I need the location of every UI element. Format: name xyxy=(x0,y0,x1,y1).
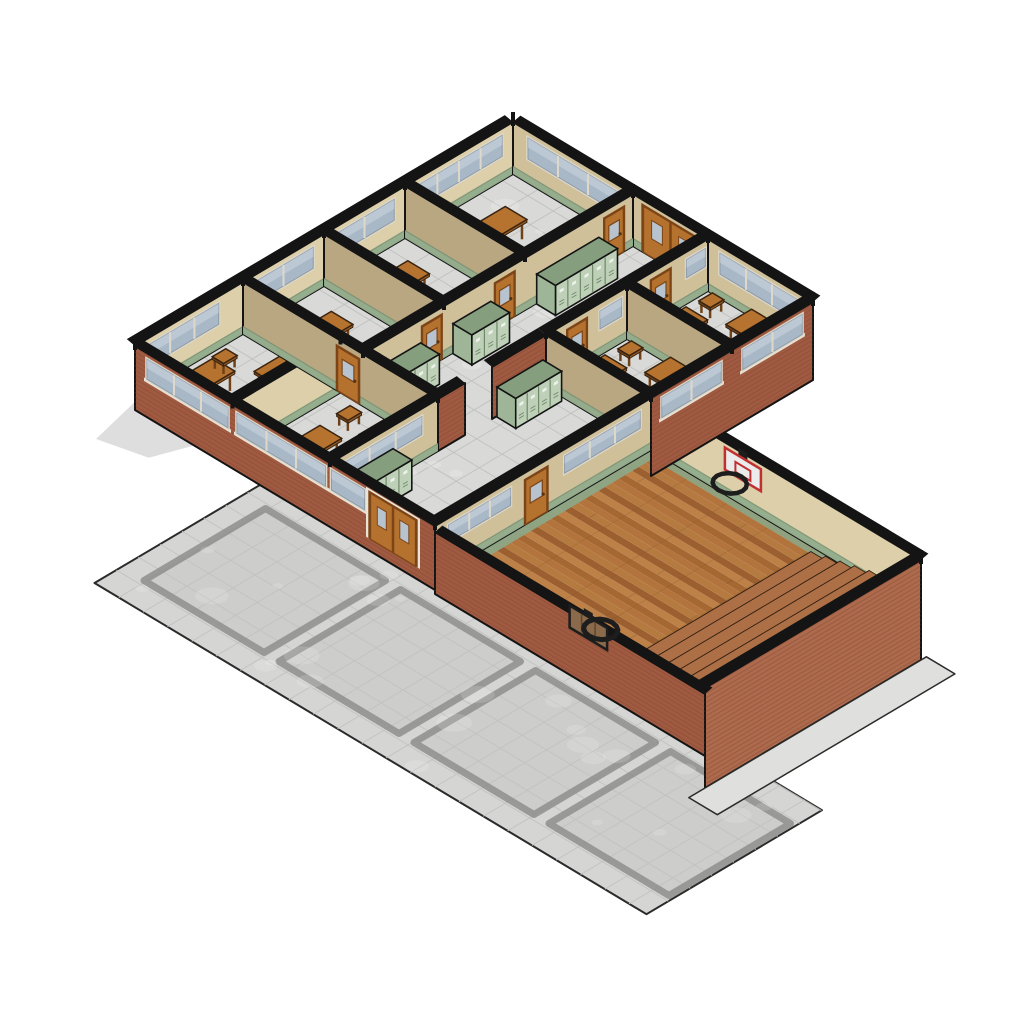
plaza-mottle xyxy=(405,760,429,772)
plaza-mottle xyxy=(395,596,405,601)
plaza-mottle xyxy=(200,546,214,553)
plaza-mottle xyxy=(545,695,571,708)
plaza-mottle xyxy=(195,588,228,605)
plaza-mottle xyxy=(297,674,324,687)
plaza-mottle xyxy=(349,575,370,585)
plaza-mottle xyxy=(265,660,277,666)
door-knob xyxy=(509,297,512,300)
plaza-mottle xyxy=(272,583,283,589)
plaza-mottle xyxy=(581,752,606,765)
isometric-school-model xyxy=(0,0,1024,1024)
plaza-mottle xyxy=(461,686,495,703)
isometric-school-model-stage xyxy=(0,0,1024,1024)
plaza-mottle xyxy=(674,764,696,775)
floor-mottle xyxy=(535,229,544,233)
plaza-mottle xyxy=(436,714,472,732)
scene-root xyxy=(95,112,955,914)
door-knob xyxy=(665,294,668,297)
floor-mottle xyxy=(449,470,463,477)
plaza-mottle xyxy=(380,570,398,579)
plaza-mottle xyxy=(284,646,320,664)
plaza-mottle xyxy=(592,820,603,826)
door-knob xyxy=(436,340,439,343)
plaza-mottle xyxy=(135,585,149,592)
door-knob xyxy=(542,493,545,496)
door-knob xyxy=(619,232,622,235)
plaza-mottle xyxy=(603,749,631,763)
floor-mottle xyxy=(427,461,441,468)
plaza-mottle xyxy=(567,737,599,753)
door-knob xyxy=(353,380,356,383)
plaza-mottle xyxy=(756,803,772,811)
plaza-mottle xyxy=(367,594,390,606)
plaza-mottle xyxy=(653,829,667,836)
plaza-mottle xyxy=(567,725,586,735)
